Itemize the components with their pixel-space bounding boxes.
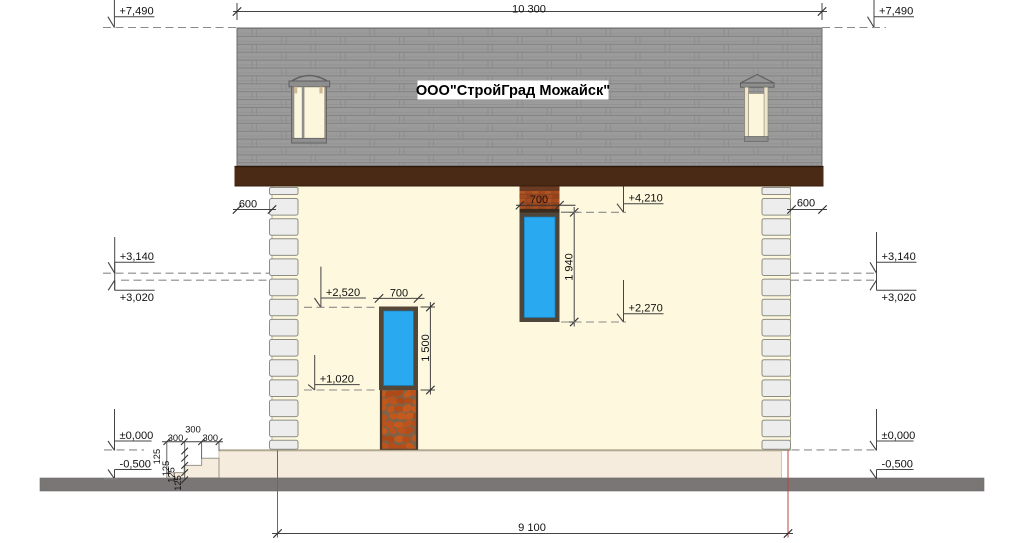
svg-text:700: 700 bbox=[390, 287, 408, 299]
svg-text:+2,270: +2,270 bbox=[629, 303, 663, 315]
svg-text:1 940: 1 940 bbox=[563, 253, 575, 281]
svg-text:±0,000: ±0,000 bbox=[882, 430, 916, 442]
svg-text:300: 300 bbox=[168, 433, 184, 443]
svg-text:+7,490: +7,490 bbox=[119, 6, 153, 18]
svg-text:600: 600 bbox=[239, 199, 257, 211]
svg-text:+3,020: +3,020 bbox=[120, 292, 154, 304]
svg-text:600: 600 bbox=[797, 198, 815, 210]
svg-text:125: 125 bbox=[173, 475, 183, 491]
svg-text:+4,210: +4,210 bbox=[629, 193, 663, 205]
svg-text:+7,490: +7,490 bbox=[879, 6, 913, 18]
svg-text:±0,000: ±0,000 bbox=[120, 430, 154, 442]
svg-text:9 100: 9 100 bbox=[518, 522, 546, 534]
svg-text:ООО"СтройГрад Можайск": ООО"СтройГрад Можайск" bbox=[416, 83, 610, 99]
svg-text:+1,020: +1,020 bbox=[320, 373, 354, 385]
svg-text:10 300: 10 300 bbox=[512, 4, 546, 16]
svg-text:-0,500: -0,500 bbox=[882, 458, 913, 470]
svg-text:+3,020: +3,020 bbox=[882, 292, 916, 304]
svg-text:+3,140: +3,140 bbox=[120, 251, 154, 263]
svg-text:300: 300 bbox=[185, 425, 201, 435]
svg-text:+3,140: +3,140 bbox=[882, 251, 916, 263]
svg-text:300: 300 bbox=[203, 433, 219, 443]
svg-text:-0,500: -0,500 bbox=[120, 458, 151, 470]
svg-text:1 500: 1 500 bbox=[420, 334, 432, 362]
svg-text:700: 700 bbox=[530, 194, 548, 206]
svg-text:+2,520: +2,520 bbox=[326, 287, 360, 299]
